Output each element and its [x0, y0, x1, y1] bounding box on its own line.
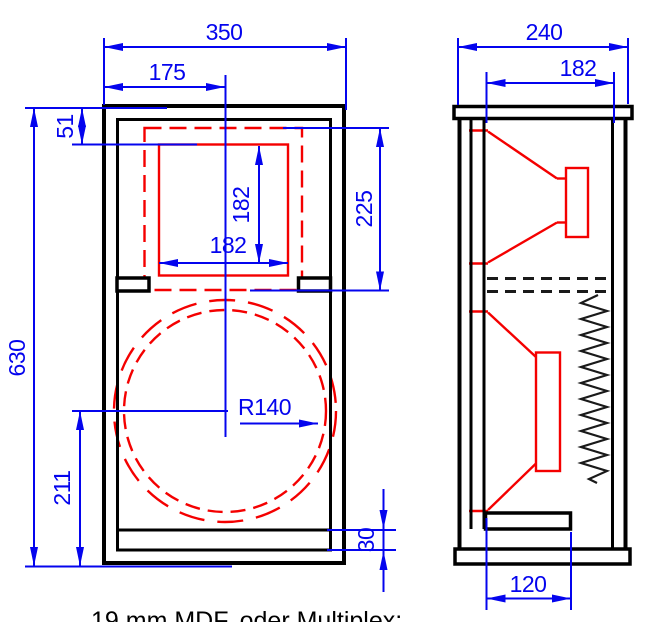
mid-driver-section [469, 131, 588, 264]
dim-mid-cutout-width-label: 182 [210, 232, 247, 258]
dim-bottom-shelf: 30 [327, 489, 396, 592]
dim-woofer-center-height: 211 [49, 411, 80, 566]
dim-chamber-height: 225 [250, 128, 389, 291]
dim-top-offset-label: 51 [52, 114, 78, 139]
dim-front-center-offset: 175 [104, 59, 225, 87]
dim-center-offset-label: 175 [149, 59, 186, 85]
front-inner-wall-outline [118, 120, 331, 551]
dim-depth-label: 240 [526, 19, 563, 45]
port-shelf [486, 513, 571, 529]
dim-mid-cutout-height-label: 182 [228, 187, 254, 224]
dim-woofer-radius-label: R140 [238, 394, 291, 420]
dim-woofer-radius: R140 [238, 394, 318, 424]
mid-chamber-dashed-rect [145, 128, 303, 290]
mid-driver-magnet [566, 168, 588, 237]
dim-front-width-label: 350 [206, 19, 243, 45]
damping-material-zigzag [581, 295, 607, 483]
cad-drawing-page: 350 175 51 630 211 2 [0, 0, 656, 622]
material-caption: 19 mm MDF, oder Multiplex: [91, 607, 402, 622]
dim-port-shelf-label: 120 [510, 571, 547, 597]
side-view: 240 182 120 [454, 19, 632, 610]
dim-woofer-center-label: 211 [49, 470, 75, 505]
dim-mid-cutout-width: 182 [159, 232, 288, 263]
front-divider-bracket-left [117, 278, 149, 291]
dim-height-label: 630 [4, 340, 30, 377]
dim-chamber-height-label: 225 [351, 191, 377, 228]
woofer-magnet [536, 353, 560, 472]
front-view: 350 175 51 630 211 2 [4, 19, 396, 592]
cone-line [488, 313, 536, 358]
side-bottom-panel [455, 549, 630, 564]
dim-bottom-shelf-label: 30 [353, 528, 379, 553]
side-top-panel [454, 107, 632, 119]
speaker-cabinet-drawing: 350 175 51 630 211 2 [0, 0, 656, 622]
dim-side-depth: 240 [458, 19, 628, 105]
front-divider-bracket-right [299, 278, 331, 291]
front-mid-chamber-dashed-outline [145, 128, 303, 290]
cone-line [488, 132, 557, 179]
dim-front-top-offset: 51 [25, 108, 197, 145]
dim-inner-depth-label: 182 [560, 55, 597, 81]
cone-line [488, 223, 557, 263]
cone-line [488, 464, 536, 511]
front-outer-outline [104, 106, 344, 563]
